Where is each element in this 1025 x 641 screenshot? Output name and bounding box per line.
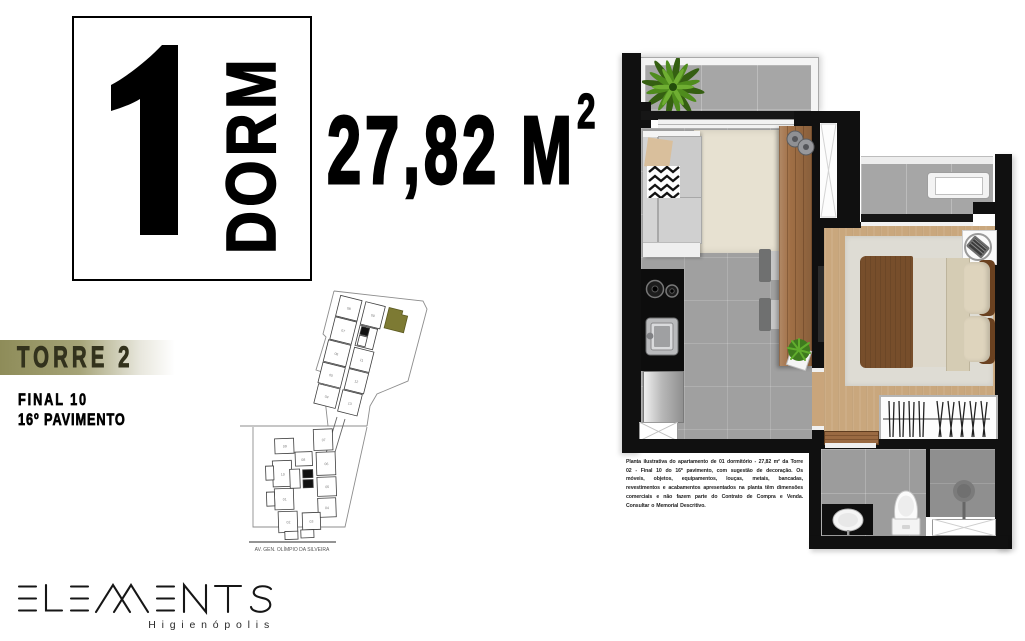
svg-text:05: 05 (325, 485, 329, 489)
svg-text:04: 04 (325, 506, 329, 510)
svg-text:09: 09 (283, 444, 287, 448)
svg-text:Higienópolis: Higienópolis (148, 619, 275, 631)
svg-text:02: 02 (286, 520, 290, 524)
svg-text:08: 08 (301, 458, 305, 462)
svg-text:01: 01 (283, 497, 287, 501)
svg-text:07: 07 (322, 438, 326, 442)
svg-text:06: 06 (324, 462, 328, 466)
svg-text:03: 03 (309, 520, 313, 524)
svg-text:10: 10 (281, 473, 285, 477)
svg-text:AV. GEN. OLÍMPIO DA SILVEIRA: AV. GEN. OLÍMPIO DA SILVEIRA (255, 546, 330, 553)
